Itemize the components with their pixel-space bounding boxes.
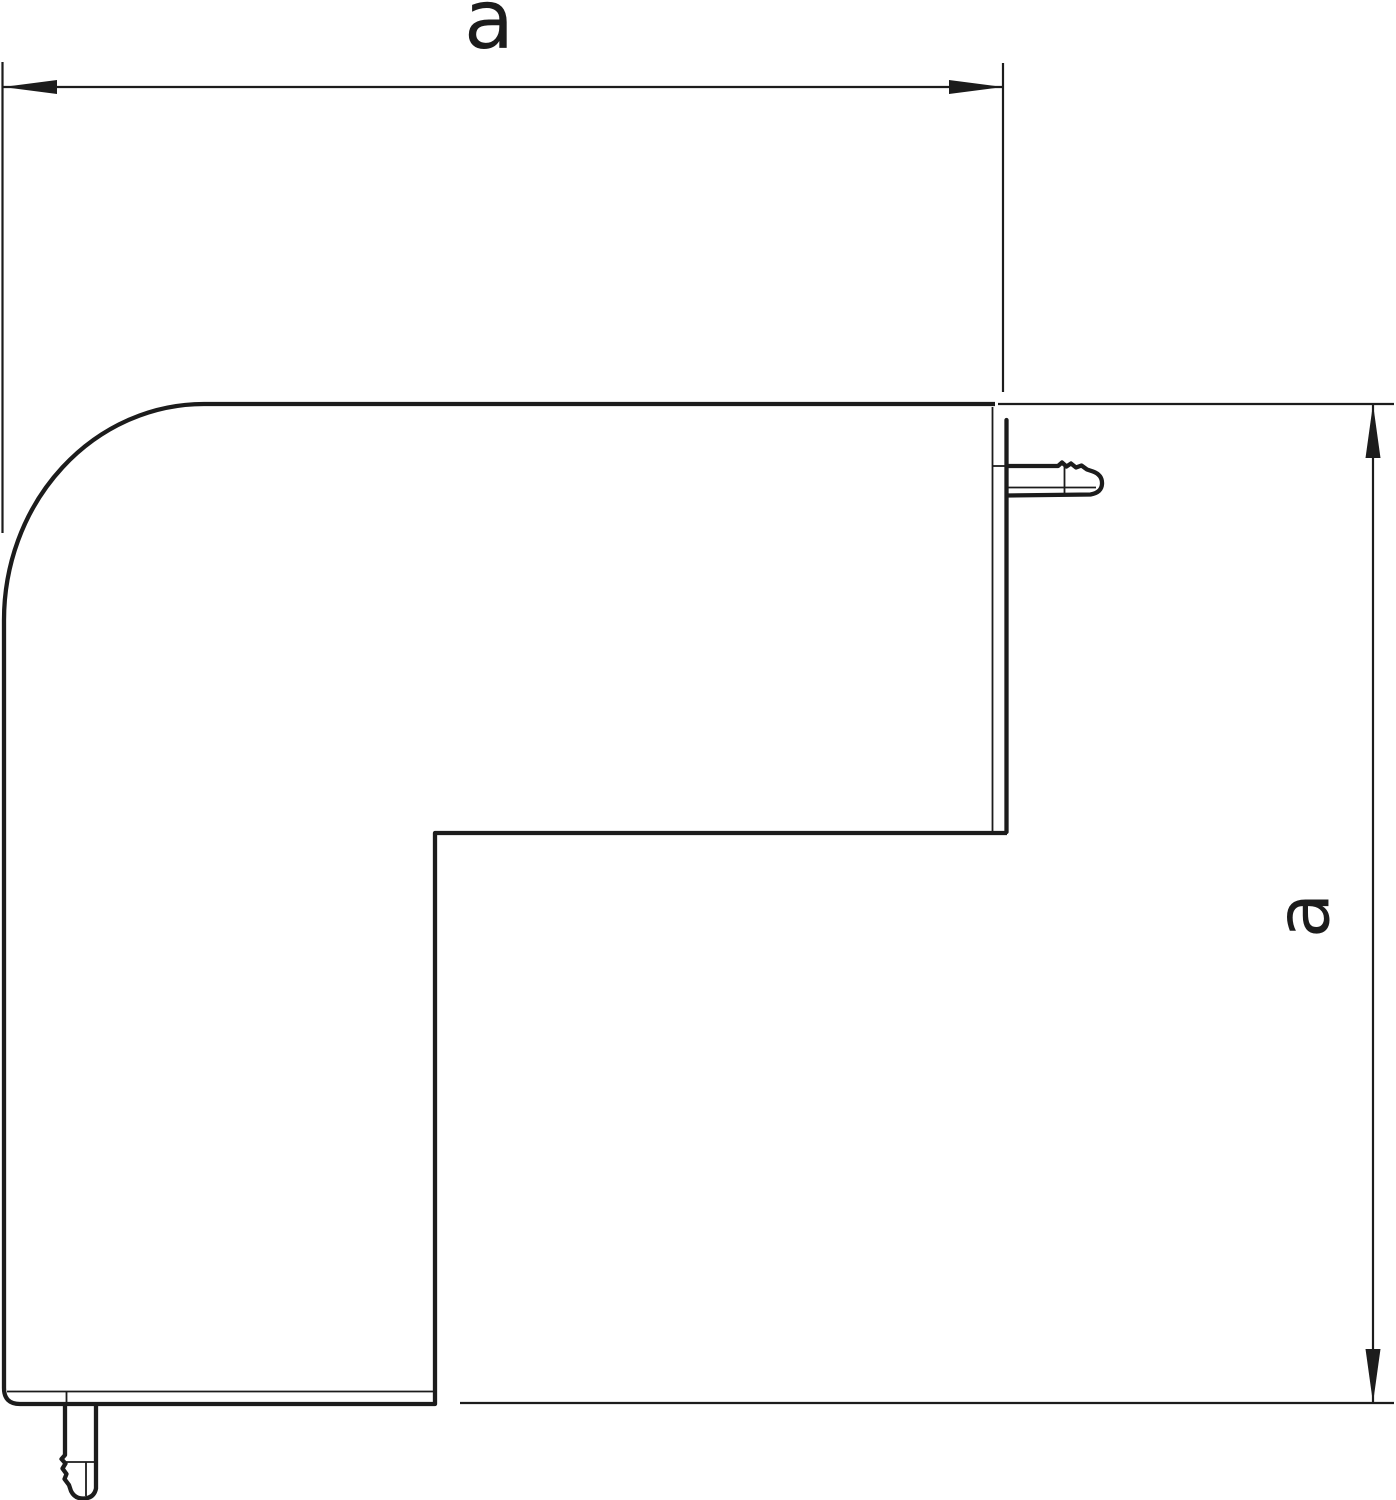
external-corner-dimension-drawing: a a [0, 0, 1396, 1500]
dimension-label-horizontal: a [464, 0, 514, 68]
drawing-background [0, 0, 1396, 1500]
dimension-label-vertical: a [1261, 893, 1347, 938]
technical-drawing-canvas: a a [0, 0, 1396, 1500]
